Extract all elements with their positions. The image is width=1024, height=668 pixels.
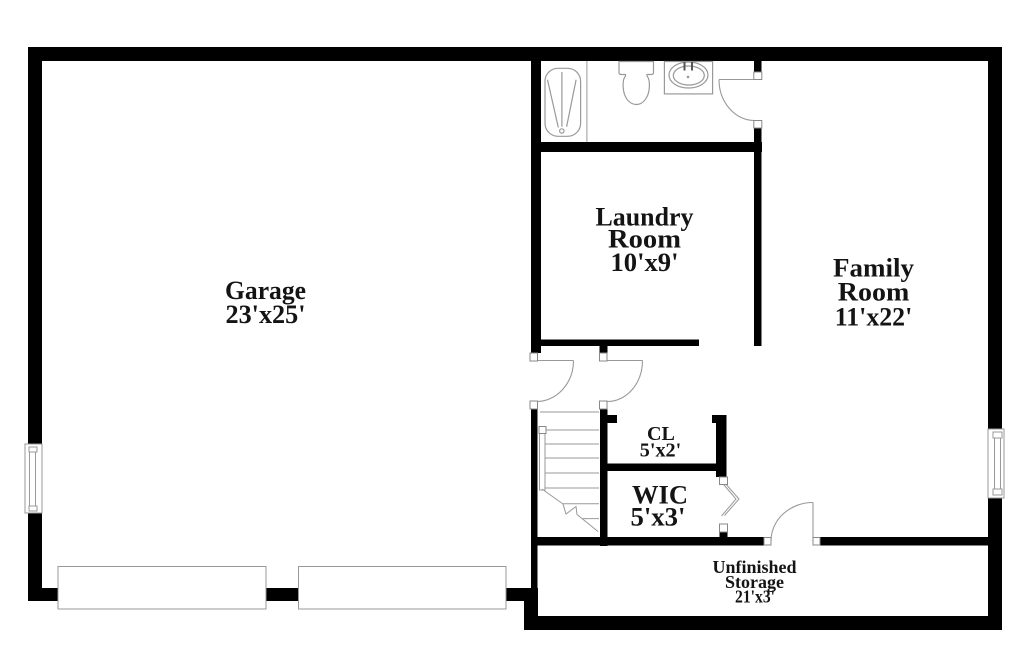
svg-text:11'x22': 11'x22' (835, 303, 913, 332)
svg-text:5'x3': 5'x3' (631, 503, 686, 532)
svg-text:5'x2': 5'x2' (640, 440, 682, 462)
svg-text:23'x25': 23'x25' (226, 300, 306, 329)
svg-text:10'x9': 10'x9' (611, 248, 679, 277)
svg-text:21'x3': 21'x3' (735, 587, 775, 607)
